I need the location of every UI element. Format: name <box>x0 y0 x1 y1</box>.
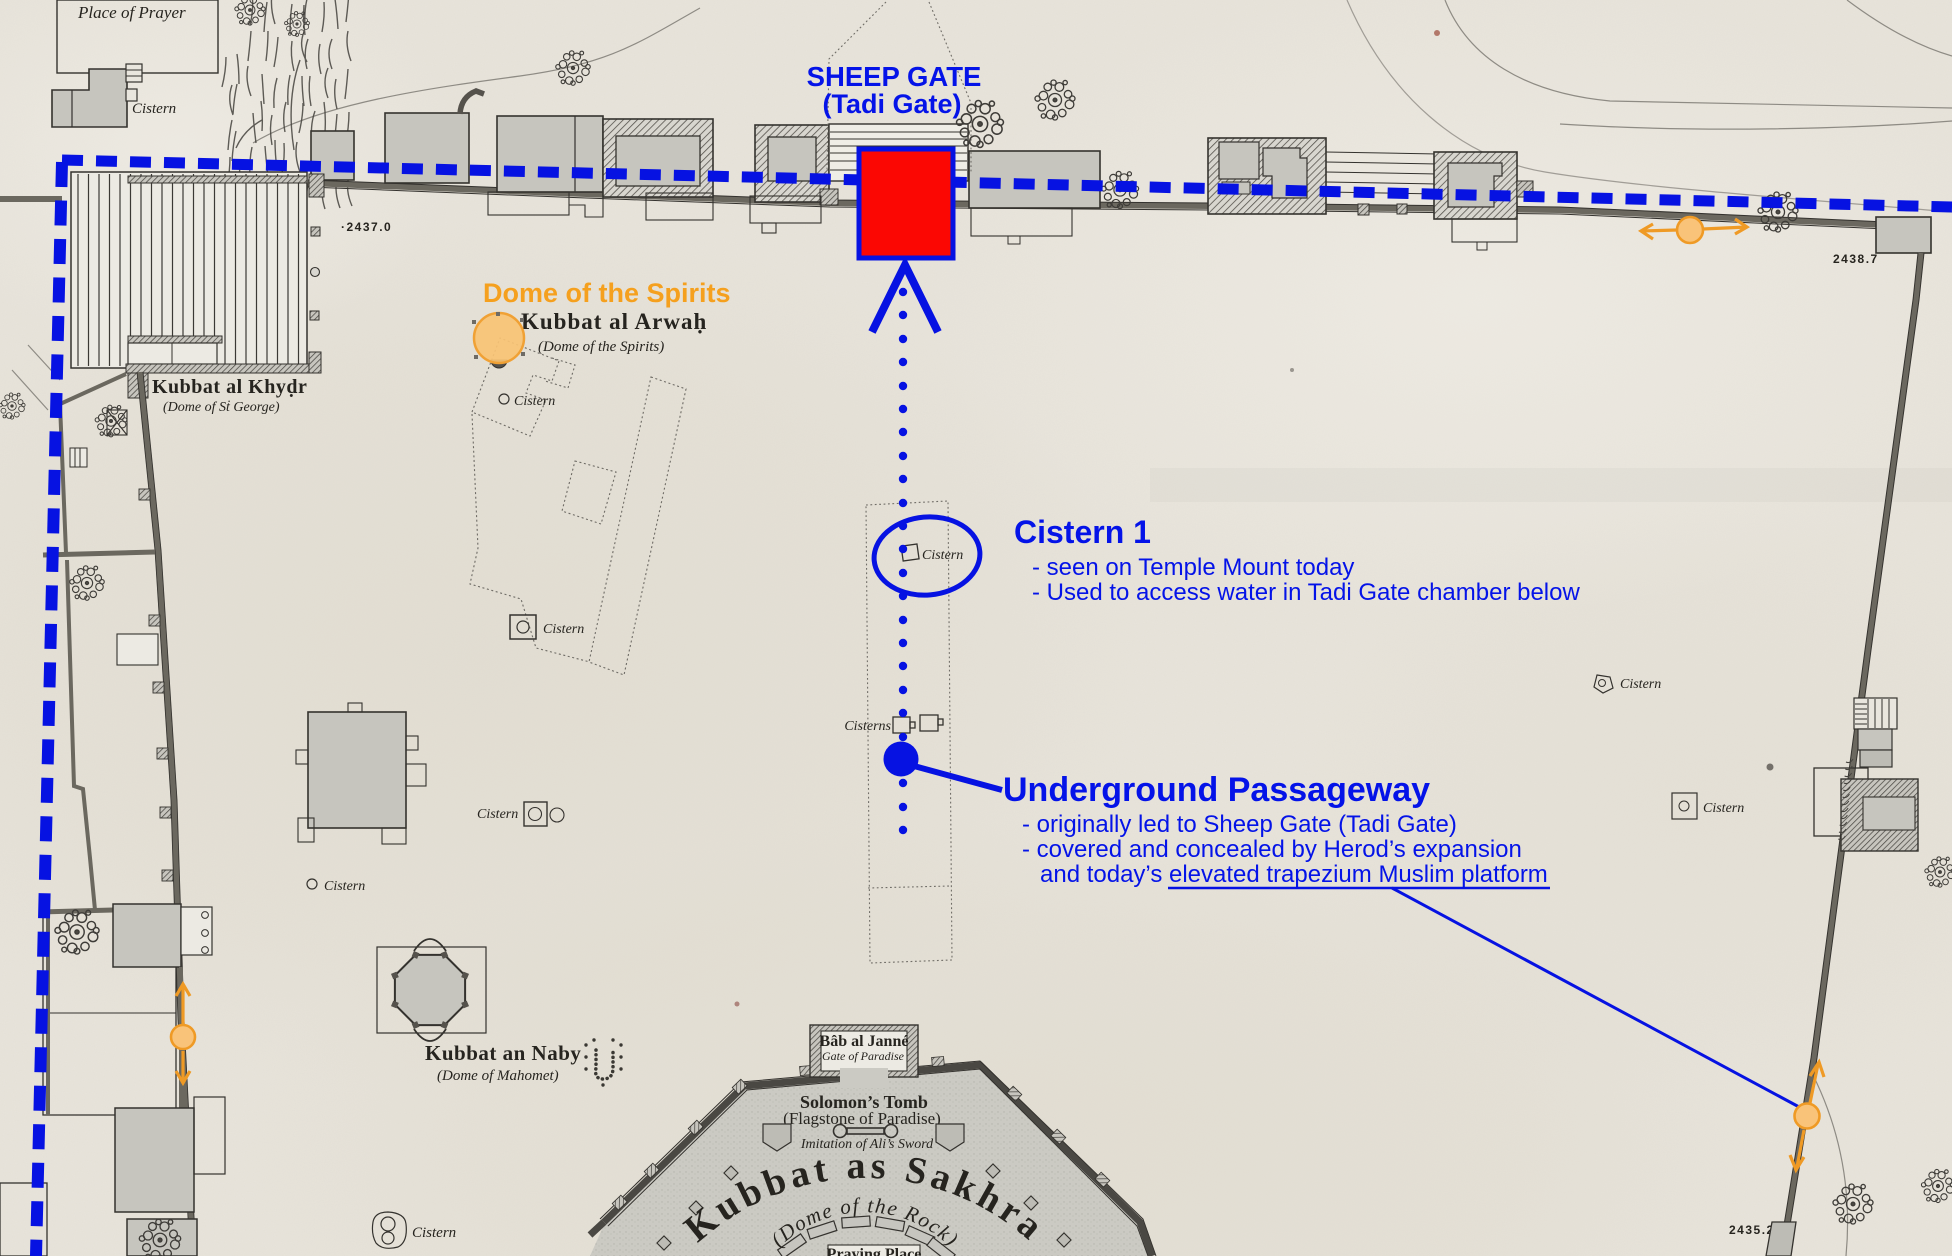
svg-text:(Dome of Sṫ George): (Dome of Sṫ George) <box>163 399 280 415</box>
svg-text:Praying Place: Praying Place <box>827 1246 922 1256</box>
svg-text:2438.7: 2438.7 <box>1833 252 1879 266</box>
svg-text:- originally led to Sheep Gate: - originally led to Sheep Gate (Tadi Gat… <box>1022 811 1457 838</box>
svg-text:Cistern: Cistern <box>132 101 176 117</box>
svg-text:Underground Passageway: Underground Passageway <box>1003 771 1430 809</box>
svg-text:Bâb al Janné: Bâb al Janné <box>820 1033 909 1050</box>
svg-text:Dome of the Spirits: Dome of the Spirits <box>483 278 731 308</box>
svg-text:·2437.0: ·2437.0 <box>341 220 392 234</box>
svg-text:Cistern: Cistern <box>1620 677 1661 692</box>
svg-text:- covered and concealed by He: - covered and concealed by Herod’s expan… <box>1022 836 1522 863</box>
svg-text:Gate of Paradise: Gate of Paradise <box>822 1049 905 1063</box>
svg-text:and today’s elevated trapezium: and today’s elevated trapezium Muslim pl… <box>1040 861 1548 888</box>
svg-text:Cistern: Cistern <box>543 622 584 637</box>
svg-text:Cistern: Cistern <box>324 879 365 894</box>
svg-text:- seen on Temple Mount today: - seen on Temple Mount today <box>1032 554 1354 581</box>
svg-text:Cistern: Cistern <box>922 548 963 563</box>
svg-text:(Dome of Mahomet): (Dome of Mahomet) <box>437 1068 559 1084</box>
svg-text:(Flagstone of Paradise): (Flagstone of Paradise) <box>783 1109 941 1128</box>
svg-text:2435.2: 2435.2 <box>1729 1223 1775 1237</box>
svg-text:Cistern: Cistern <box>1703 801 1744 816</box>
svg-text:Cistern: Cistern <box>477 807 518 822</box>
svg-text:Cisterns: Cisterns <box>844 719 891 734</box>
svg-text:- Used to access water in Tadi: - Used to access water in Tadi Gate cham… <box>1032 579 1580 606</box>
svg-text:Cistern: Cistern <box>514 394 555 409</box>
svg-text:Kubbat al Arwaḥ: Kubbat al Arwaḥ <box>521 309 707 334</box>
svg-text:Kubbat al Khyḍr: Kubbat al Khyḍr <box>152 376 307 398</box>
svg-text:Cistern 1: Cistern 1 <box>1014 514 1151 550</box>
svg-text:Cistern: Cistern <box>412 1225 456 1241</box>
svg-text:Kubbat an Naby: Kubbat an Naby <box>425 1041 581 1065</box>
svg-text:(Tadi Gate): (Tadi Gate) <box>822 89 961 119</box>
svg-text:(Dome of the Spirits): (Dome of the Spirits) <box>538 339 664 355</box>
svg-text:Place of Prayer: Place of Prayer <box>77 3 186 22</box>
svg-text:SHEEP GATE: SHEEP GATE <box>807 61 982 92</box>
